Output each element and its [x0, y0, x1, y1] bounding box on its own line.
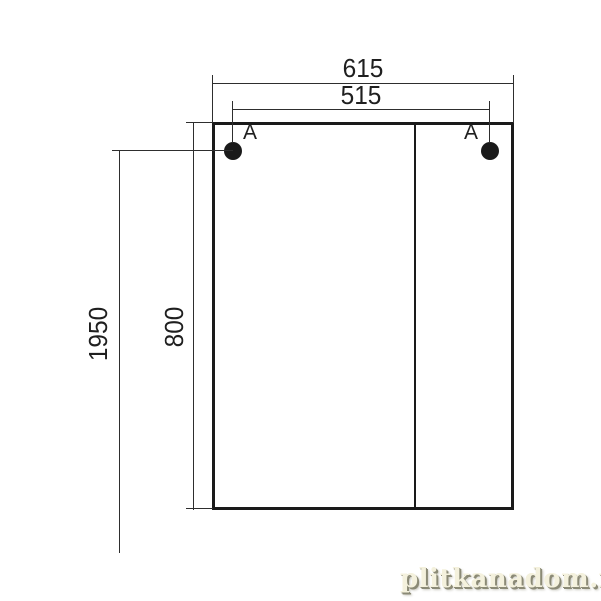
dim-label-hole-spacing: 515	[314, 82, 408, 108]
extension-line-mounting-height-top	[112, 150, 233, 151]
mount-point-label-right: A	[464, 122, 478, 144]
dim-line-mounting-height	[119, 150, 120, 553]
cabinet-dimension-drawing: A A 615 515 800 1950 plitkanadom.ru	[0, 0, 601, 601]
extension-line-hole-spacing-left	[232, 101, 233, 143]
extension-line-cabinet-height-top	[186, 122, 213, 123]
extension-line-cabinet-height-bottom	[186, 508, 213, 509]
dim-label-mounting-height: 1950	[85, 292, 111, 377]
dim-line-cabinet-height	[193, 122, 194, 510]
mount-point-left-dot	[224, 142, 242, 160]
extension-line-total-width-left	[212, 75, 213, 123]
extension-line-hole-spacing-right	[489, 101, 490, 143]
cabinet-outline	[212, 122, 514, 510]
dim-label-total-width: 615	[316, 55, 410, 81]
cabinet-divider-line	[414, 122, 416, 510]
mount-point-right-dot	[481, 142, 499, 160]
mount-point-label-left: A	[243, 122, 257, 144]
dim-label-cabinet-height: 800	[161, 294, 187, 360]
extension-line-total-width-right	[513, 75, 514, 123]
watermark-text: plitkanadom.ru	[400, 564, 600, 594]
